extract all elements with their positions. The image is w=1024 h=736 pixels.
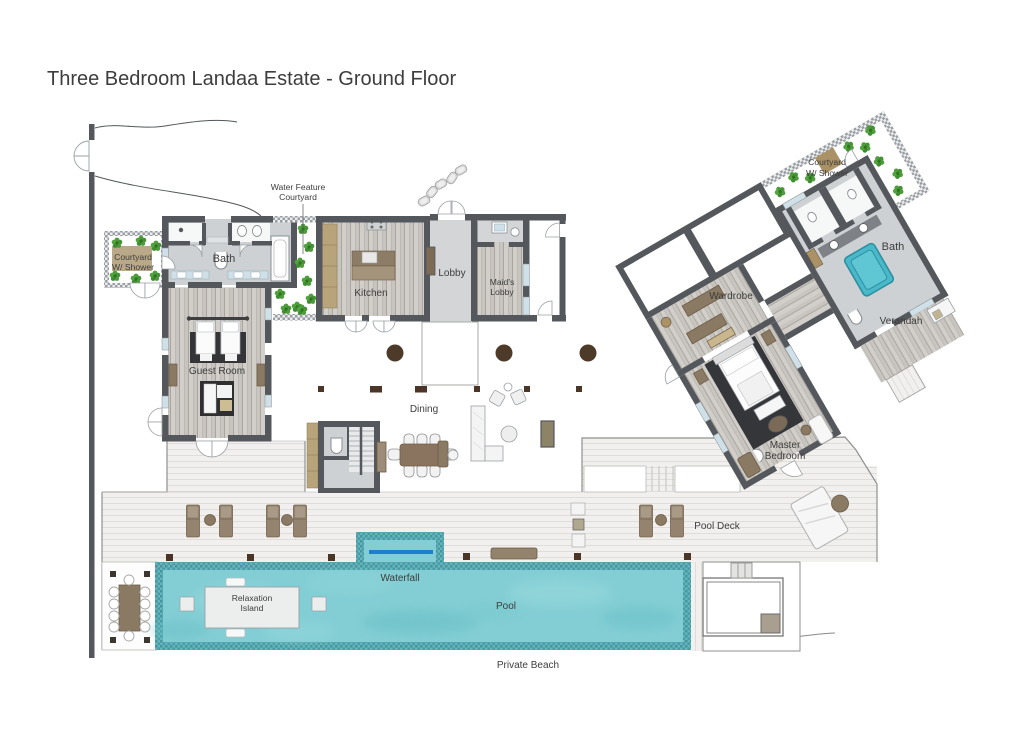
svg-text:Courtyard: Courtyard [279, 192, 317, 202]
svg-text:Verandah: Verandah [880, 316, 923, 327]
svg-text:W/ Shower: W/ Shower [806, 168, 848, 178]
svg-text:Wardrobe: Wardrobe [709, 291, 753, 302]
svg-text:Kitchen: Kitchen [354, 288, 387, 299]
svg-text:Pool: Pool [496, 601, 516, 612]
svg-text:Dining: Dining [410, 404, 438, 415]
svg-text:Maid's: Maid's [490, 277, 515, 287]
svg-text:Relaxation: Relaxation [232, 593, 273, 603]
svg-text:Pool Deck: Pool Deck [694, 521, 741, 532]
svg-text:Bath: Bath [882, 241, 905, 253]
svg-text:Island: Island [241, 603, 264, 613]
svg-text:Bedroom: Bedroom [765, 451, 806, 462]
svg-text:Courtyard: Courtyard [808, 157, 846, 167]
svg-text:Bath: Bath [213, 253, 236, 265]
svg-text:Master: Master [770, 440, 801, 451]
svg-text:Guest Room: Guest Room [189, 366, 245, 377]
svg-text:Water Feature: Water Feature [271, 182, 326, 192]
svg-text:W/ Shower: W/ Shower [112, 262, 154, 272]
svg-text:Three Bedroom Landaa Estate -: Three Bedroom Landaa Estate - Ground Flo… [47, 68, 456, 90]
svg-text:Lobby: Lobby [490, 287, 514, 297]
svg-text:Courtyard: Courtyard [114, 252, 152, 262]
svg-text:Private Beach: Private Beach [497, 660, 559, 671]
svg-text:Lobby: Lobby [438, 268, 465, 279]
svg-text:Waterfall: Waterfall [380, 573, 419, 584]
